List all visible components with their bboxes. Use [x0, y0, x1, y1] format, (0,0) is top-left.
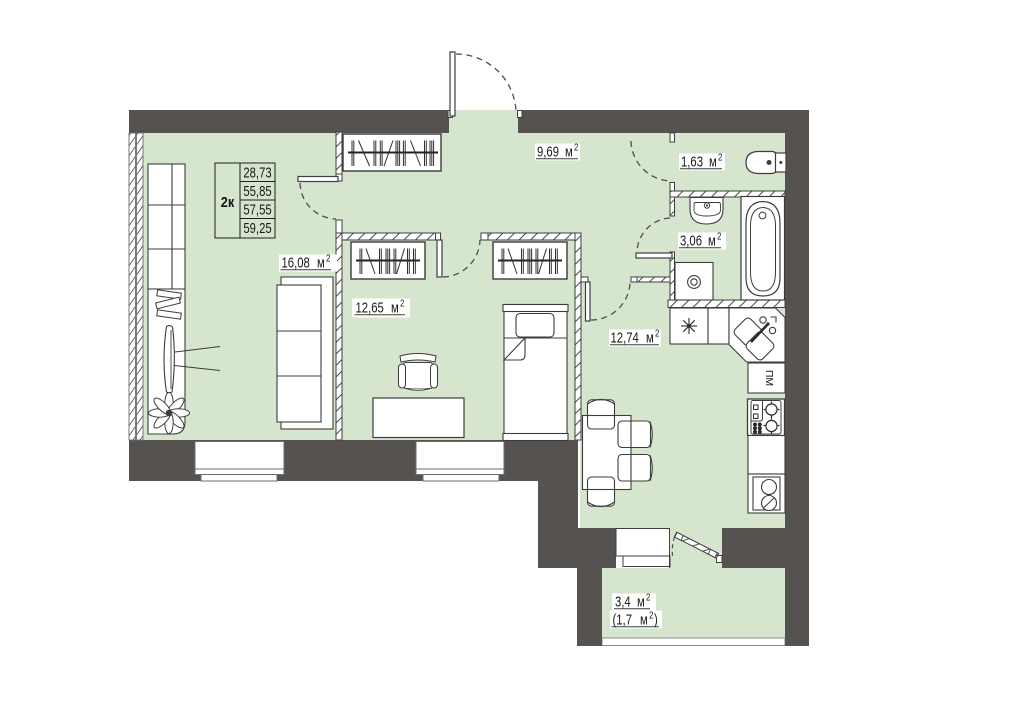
svg-text:м: м [708, 232, 716, 249]
svg-text:55,85: 55,85 [243, 183, 271, 200]
svg-text:2: 2 [717, 231, 721, 242]
svg-text:3,4: 3,4 [615, 593, 631, 610]
svg-text:28,73: 28,73 [243, 164, 271, 181]
svg-text:16,08: 16,08 [282, 254, 310, 271]
svg-text:59,25: 59,25 [243, 220, 271, 237]
svg-text:2: 2 [646, 592, 650, 603]
svg-text:2: 2 [718, 152, 722, 163]
svg-text:9,69: 9,69 [537, 143, 559, 160]
svg-text:3,06: 3,06 [680, 232, 702, 249]
svg-text:м: м [317, 254, 325, 271]
svg-text:м: м [637, 593, 645, 610]
svg-text:57,55: 57,55 [243, 201, 271, 218]
svg-text:2к: 2к [221, 193, 234, 210]
svg-text:2: 2 [655, 328, 659, 339]
svg-text:м: м [646, 329, 654, 346]
svg-text:12,65: 12,65 [356, 299, 384, 316]
svg-text:м: м [391, 299, 399, 316]
svg-text:(1,7: (1,7 [613, 611, 632, 628]
svg-text:2: 2 [574, 142, 578, 153]
svg-text:2: 2 [326, 253, 330, 264]
svg-text:1,63: 1,63 [681, 153, 703, 170]
svg-text:2: 2 [400, 298, 404, 309]
svg-text:м: м [640, 611, 648, 628]
svg-text:2: 2 [649, 610, 653, 621]
svg-text:м: м [709, 153, 717, 170]
svg-text:ПМ: ПМ [763, 370, 775, 386]
svg-text:м: м [565, 143, 573, 160]
svg-text:12,74: 12,74 [611, 329, 639, 346]
svg-text:): ) [654, 611, 658, 628]
